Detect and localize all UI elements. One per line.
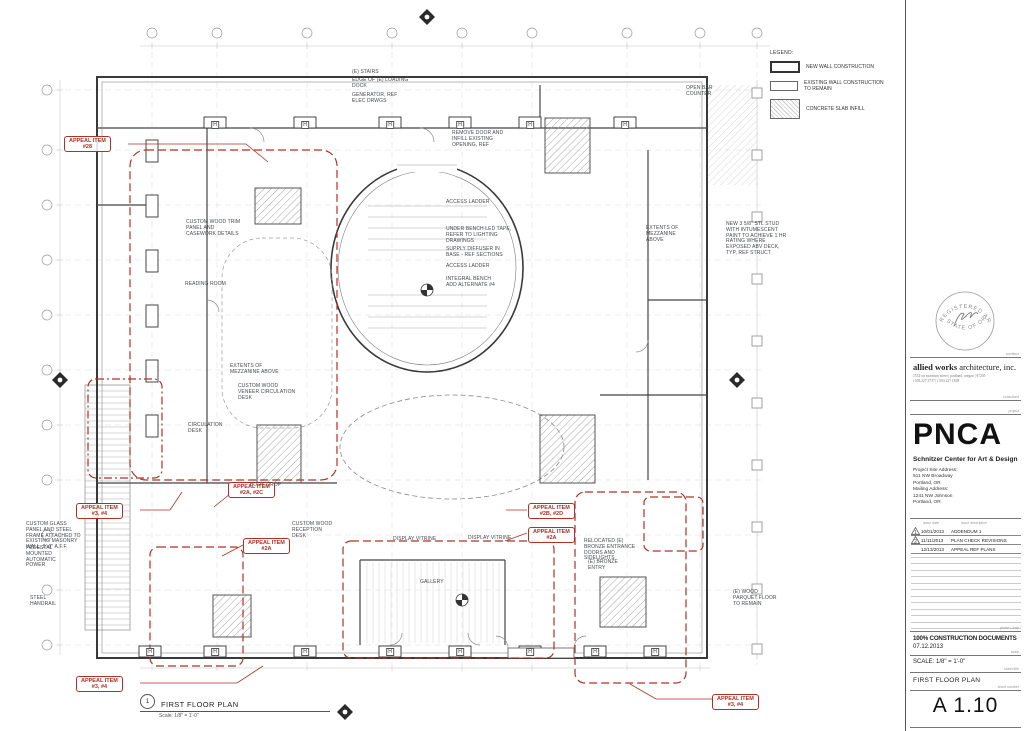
firm-name-bold: allied works — [913, 362, 957, 372]
exterior-stair — [85, 385, 130, 630]
firm-phone: t 503.227.1737 | f 503.227.1828 — [913, 379, 1019, 384]
svg-text:2: 2 — [914, 538, 917, 543]
revision-row: 1 10/01/2013 ADDENDUM 1 — [911, 527, 1021, 536]
stair-and-core-blocks — [213, 118, 646, 637]
concrete-infill-swatch — [770, 99, 800, 119]
micro-label-project: project — [1008, 409, 1019, 413]
new-wall-swatch — [770, 61, 800, 73]
project-address: Project Site Address: 511 NW Broadway Po… — [913, 468, 958, 507]
drawing-title-text: FIRST FLOOR PLAN — [161, 700, 239, 709]
firm-name-rest: architecture, inc. — [957, 362, 1016, 372]
phase-date: 07.12.2013 — [913, 644, 943, 650]
legend: LEGEND: NEW WALL CONSTRUCTION EXISTING W… — [770, 50, 900, 126]
phase-label: 100% CONSTRUCTION DOCUMENTS — [913, 635, 1017, 642]
micro-label-sheet-title: sheet title — [1004, 667, 1019, 671]
revision-delta-icon: 2 — [911, 536, 920, 544]
legend-item-new-wall: NEW WALL CONSTRUCTION — [770, 61, 900, 73]
sheet-scale: SCALE: 1/8" = 1'-0" — [913, 659, 965, 665]
architect-stamp: REGISTERED ARCHITECT STATE OF OREGON — [932, 288, 998, 354]
micro-label-consultant: consultant — [1003, 395, 1019, 399]
client-logo: PNCA — [913, 418, 1002, 452]
revision-empty-rows — [911, 551, 1021, 629]
revision-table: 1 10/01/2013 ADDENDUM 1 2 11/11/2013 PLA… — [911, 527, 1021, 554]
drawing-title: 1 FIRST FLOOR PLAN Scale: 1/8" = 1'-0" — [140, 694, 330, 719]
architecture-firm: allied works architecture, inc. 1532 sw … — [913, 362, 1019, 384]
drawing-number-bubble: 1 — [140, 694, 155, 709]
existing-wall-swatch — [770, 81, 798, 91]
legend-item-concrete-infill: CONCRETE SLAB INFILL — [770, 99, 900, 119]
micro-label-phase: phase / date — [1000, 626, 1019, 630]
revision-delta-icon: 1 — [911, 527, 920, 535]
gallery-floor — [362, 562, 503, 643]
sheet-title: FIRST FLOOR PLAN — [913, 677, 980, 684]
drawing-scale: Scale: 1/8" = 1'-0" — [159, 713, 330, 719]
legend-title: LEGEND: — [770, 50, 900, 56]
sheet-number: A 1.10 — [906, 694, 1024, 718]
svg-text:1: 1 — [914, 529, 917, 534]
construction-document-sheet: LEGEND: NEW WALL CONSTRUCTION EXISTING W… — [0, 0, 1024, 731]
grid-bubbles — [42, 28, 762, 650]
revision-table-header: issue date issue description — [913, 521, 1019, 525]
micro-label-sheet-number: sheet number — [998, 685, 1019, 689]
micro-label-architect: architect — [1006, 352, 1019, 356]
project-title: Schnitzer Center for Art & Design — [913, 456, 1018, 463]
legend-item-existing-wall: EXISTING WALL CONSTRUCTION TO REMAIN — [770, 80, 900, 92]
title-block: REGISTERED ARCHITECT STATE OF OREGON arc… — [905, 0, 1024, 731]
micro-label-scale: scale — [1011, 650, 1019, 654]
revision-row: 2 11/11/2013 PLAN CHECK REVISIONS — [911, 536, 1021, 545]
